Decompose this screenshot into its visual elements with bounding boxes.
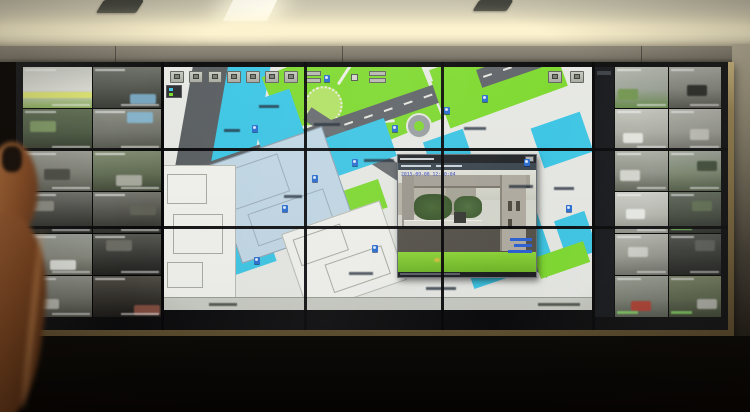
camera-timestamp-overlay	[52, 187, 90, 189]
camera-name-overlay	[617, 278, 641, 280]
map-camera-icon	[524, 159, 530, 166]
sidebar-icon	[597, 71, 611, 75]
scale-readout	[369, 71, 386, 84]
camera-timestamp-overlay	[637, 104, 666, 106]
camera-name-overlay	[617, 194, 641, 196]
map-camera-icon	[252, 125, 258, 132]
map-text-label	[224, 129, 240, 132]
camera-name-overlay	[25, 69, 56, 71]
camera-name-overlay	[671, 69, 695, 71]
popup-tab	[401, 165, 431, 167]
guard-booth	[454, 212, 466, 223]
scene-detail	[127, 112, 153, 123]
camera-timestamp-overlay	[637, 229, 666, 231]
map-tool-icon	[227, 71, 241, 83]
camera-feed-tile	[93, 234, 162, 275]
camera-feed-tile	[669, 151, 722, 192]
live-video-popup: 2015-09-08 12:50:04	[397, 154, 537, 278]
popup-status-text	[400, 273, 460, 275]
pillar-window	[508, 201, 512, 211]
camera-name-overlay	[95, 153, 126, 155]
map-tool-icon	[189, 71, 203, 83]
wall-seam	[342, 46, 343, 63]
status-text	[209, 303, 237, 306]
monitor-bezel	[16, 148, 728, 151]
control-room-photo: 2015-09-08 12:50:04	[0, 0, 750, 412]
camera-feed-tile	[615, 109, 668, 150]
camera-feed-tile	[615, 234, 668, 275]
scene-detail	[628, 247, 648, 258]
camera-timestamp-overlay	[121, 104, 159, 106]
camera-name-overlay	[671, 111, 695, 113]
pillar-window	[516, 201, 520, 211]
cove-light-strip	[0, 25, 750, 34]
map-window-button	[570, 71, 584, 83]
tree	[414, 194, 452, 220]
scene-detail	[695, 240, 715, 251]
camera-feed-tile	[93, 67, 162, 108]
monitor-bezel	[161, 62, 164, 330]
camera-name-overlay	[617, 153, 641, 155]
video-wall-frame: 2015-09-08 12:50:04	[16, 62, 734, 336]
wall-right-edge	[732, 44, 750, 344]
monitor-bezel	[304, 62, 307, 330]
camera-timestamp-overlay	[121, 229, 159, 231]
map-status-bar	[164, 297, 592, 310]
held-object	[2, 146, 22, 172]
right-panel-sidebar	[594, 67, 614, 317]
camera-timestamp-overlay	[52, 104, 90, 106]
map-tool-icon	[208, 71, 222, 83]
map-text-label	[364, 159, 394, 162]
room-lower-area	[0, 336, 750, 412]
camera-name-overlay	[25, 111, 56, 113]
camera-timestamp-overlay	[121, 313, 159, 315]
map-roundabout	[406, 113, 432, 139]
camera-timestamp-overlay	[52, 313, 90, 315]
camera-name-overlay	[671, 194, 695, 196]
camera-feed-tile	[615, 276, 668, 317]
scene-detail	[692, 201, 712, 212]
camera-name-overlay	[671, 153, 695, 155]
small-animal	[434, 258, 440, 262]
map-legend-box	[166, 85, 182, 98]
video-wall: 2015-09-08 12:50:04	[16, 62, 728, 330]
camera-name-overlay	[671, 236, 695, 238]
map-text-label	[259, 105, 279, 108]
wall-above-screens	[0, 46, 750, 63]
map-building	[531, 112, 592, 169]
wall-seam	[641, 46, 642, 63]
camera-name-overlay	[95, 194, 126, 196]
camera-feed-tile	[93, 109, 162, 150]
camera-name-overlay	[95, 111, 126, 113]
camera-feed-tile	[93, 276, 162, 317]
overexposed-band	[23, 92, 92, 98]
right-camera-grid	[615, 67, 721, 317]
camera-timestamp-overlay	[52, 229, 90, 231]
map-camera-icon	[372, 245, 378, 252]
scene-detail	[618, 89, 638, 100]
camera-feed-tile	[93, 151, 162, 192]
camera-label-overlay	[617, 311, 638, 314]
scene-detail	[631, 301, 651, 312]
scene-detail	[690, 129, 710, 140]
scene-detail	[130, 205, 156, 216]
camera-timestamp-overlay	[637, 187, 666, 189]
scene-detail	[50, 260, 76, 271]
map-text-label	[464, 127, 486, 130]
scene-detail	[687, 85, 707, 96]
popup-tab-bar	[398, 163, 536, 170]
map-camera-icon	[282, 205, 288, 212]
scene-detail	[106, 240, 132, 251]
map-text-label	[349, 272, 373, 275]
camera-name-overlay	[671, 278, 695, 280]
monitor-bezel	[592, 62, 595, 330]
gis-map-screen: 2015-09-08 12:50:04	[164, 67, 592, 297]
camera-name-overlay	[95, 69, 126, 71]
map-text-label	[509, 185, 533, 188]
pan-right-icon	[358, 73, 366, 81]
scene-detail	[130, 94, 156, 105]
camera-feed-tile	[669, 67, 722, 108]
camera-name-overlay	[95, 278, 126, 280]
camera-feed-tile	[669, 276, 722, 317]
status-text	[538, 303, 580, 306]
ceiling	[0, 0, 750, 46]
map-tool-icon	[246, 71, 260, 83]
camera-timestamp-overlay	[637, 271, 666, 273]
scene-detail	[626, 209, 646, 220]
pan-center-button	[351, 74, 358, 81]
map-camera-icon	[324, 75, 330, 82]
map-camera-icon	[566, 205, 572, 212]
popup-status-bar	[398, 272, 536, 277]
camera-name-overlay	[617, 69, 641, 71]
popup-titlebar	[398, 155, 536, 163]
camera-timestamp-overlay	[690, 187, 719, 189]
map-text-label	[314, 123, 340, 126]
camera-feed-tile	[669, 234, 722, 275]
camera-timestamp-overlay	[52, 271, 90, 273]
scene-detail	[697, 161, 717, 172]
map-camera-icon	[312, 175, 318, 182]
pan-up-icon	[350, 67, 358, 74]
wall-seam	[115, 46, 116, 63]
map-tool-icon	[284, 71, 298, 83]
scene-detail	[116, 175, 142, 186]
pan-left-icon	[343, 73, 351, 81]
map-camera-icon	[482, 95, 488, 102]
video-timestamp: 2015-09-08 12:50:04	[401, 172, 455, 177]
ceiling-light-panel	[223, 0, 277, 21]
map-window-button	[548, 71, 562, 83]
camera-feed-tile	[615, 151, 668, 192]
camera-name-overlay	[508, 250, 532, 253]
camera-timestamp-overlay	[690, 271, 719, 273]
scene-detail	[697, 299, 717, 310]
camera-name-overlay	[617, 111, 641, 113]
map-tool-icon	[170, 71, 184, 83]
camera-feed-tile	[669, 109, 722, 150]
pan-down-icon	[350, 81, 358, 89]
camera-timestamp-overlay	[690, 104, 719, 106]
map-camera-icon	[392, 125, 398, 132]
camera-name-overlay	[95, 236, 126, 238]
scene-detail	[620, 170, 640, 181]
camera-name-overlay	[514, 244, 532, 247]
lawn	[398, 252, 536, 272]
pan-dpad	[345, 68, 364, 87]
camera-timestamp-overlay	[121, 187, 159, 189]
popup-title-text	[400, 158, 434, 160]
monitor-bezel	[16, 226, 728, 229]
scene-detail	[44, 169, 70, 180]
camera-feed-tile	[615, 67, 668, 108]
camera-timestamp-overlay	[121, 271, 159, 273]
map-camera-icon	[254, 257, 260, 264]
scene-detail	[30, 121, 56, 132]
monitor-bezel	[441, 62, 444, 330]
map-floorplan-area	[164, 165, 236, 297]
scene-detail	[623, 133, 643, 144]
camera-label-overlay	[671, 311, 692, 314]
camera-feed-tile	[23, 109, 92, 150]
map-text-label	[284, 195, 302, 198]
map-tool-icon	[265, 71, 279, 83]
map-camera-icon	[444, 107, 450, 114]
ceiling-vent	[473, 0, 514, 11]
popup-tab	[436, 165, 462, 167]
camera-name-overlay	[510, 238, 532, 241]
camera-name-overlay	[617, 236, 641, 238]
map-camera-icon	[352, 159, 358, 166]
ceiling-vent	[96, 0, 144, 13]
camera-feed-tile	[23, 67, 92, 108]
map-text-label	[554, 187, 574, 190]
